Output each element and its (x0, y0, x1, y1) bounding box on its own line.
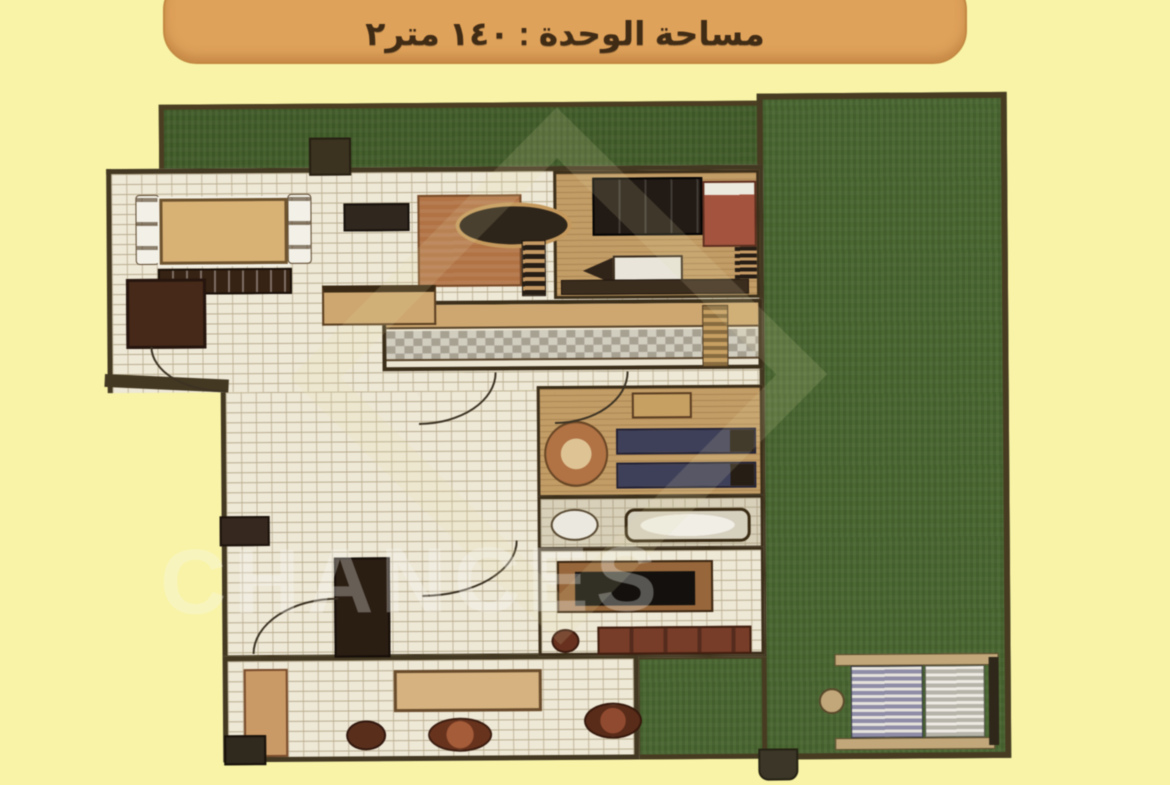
dining-chairs (287, 194, 311, 264)
area-banner-text: مساحة الوحدة : ١٤٠ متر٢ (365, 14, 765, 53)
terrace-chair (346, 720, 386, 750)
pergola-slats (851, 665, 924, 738)
terrace-chair (428, 717, 492, 751)
dining-table (159, 198, 287, 265)
pergola (831, 653, 1004, 750)
garden-bottom (635, 655, 768, 760)
watermark-text: CHANCES (160, 526, 861, 636)
terrace (223, 653, 640, 762)
pergola-step (819, 688, 845, 714)
terrace-chair (584, 702, 642, 738)
pergola-beam (835, 737, 995, 750)
area-banner: مساحة الوحدة : ١٤٠ متر٢ (163, 0, 967, 64)
terrace-corner-block (224, 735, 266, 765)
shelf (735, 247, 757, 279)
console (343, 203, 409, 231)
pergola-slats (925, 665, 986, 737)
bed (702, 181, 756, 247)
scene: مساحة الوحدة : ١٤٠ متر٢ (0, 0, 1170, 785)
gate-stub (758, 748, 798, 780)
terrace-table (394, 669, 542, 712)
armchair (126, 278, 206, 349)
pergola-post (989, 657, 1000, 745)
garden-strip-top (159, 101, 763, 175)
dining-chairs (135, 195, 159, 265)
wall-block (309, 137, 351, 175)
floor-plan: CHANCES (101, 87, 1023, 775)
